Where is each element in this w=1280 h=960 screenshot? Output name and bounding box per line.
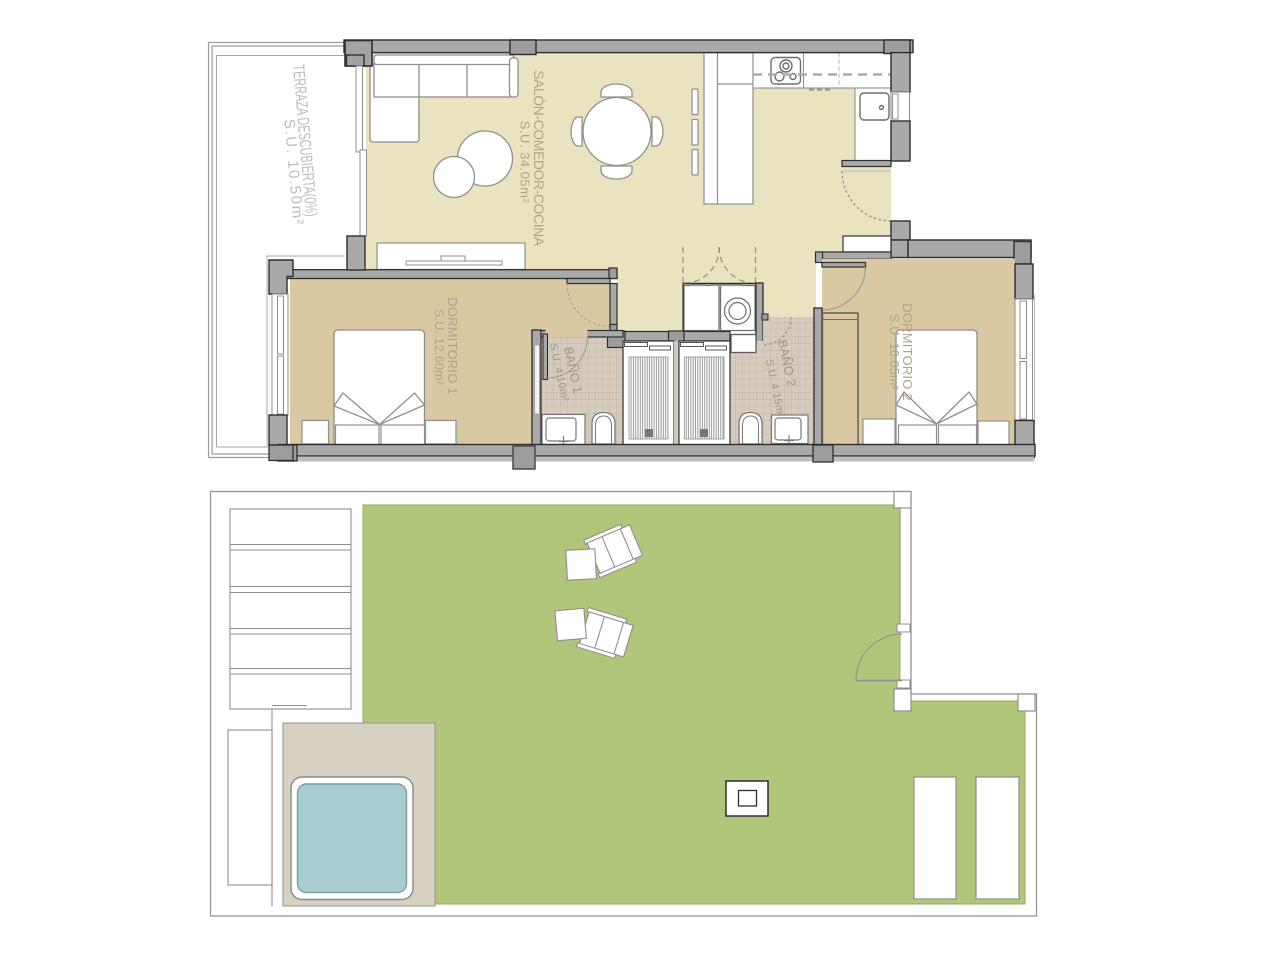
svg-text:S.U. 10.05m²: S.U. 10.05m² bbox=[887, 314, 901, 390]
svg-text:DORMITORIO 1: DORMITORIO 1 bbox=[445, 297, 460, 395]
svg-text:S.U. 34.05m²: S.U. 34.05m² bbox=[518, 121, 533, 204]
svg-text:S.U. 12.60m²: S.U. 12.60m² bbox=[432, 309, 446, 385]
svg-text:DORMITORIO 2: DORMITORIO 2 bbox=[900, 303, 915, 401]
